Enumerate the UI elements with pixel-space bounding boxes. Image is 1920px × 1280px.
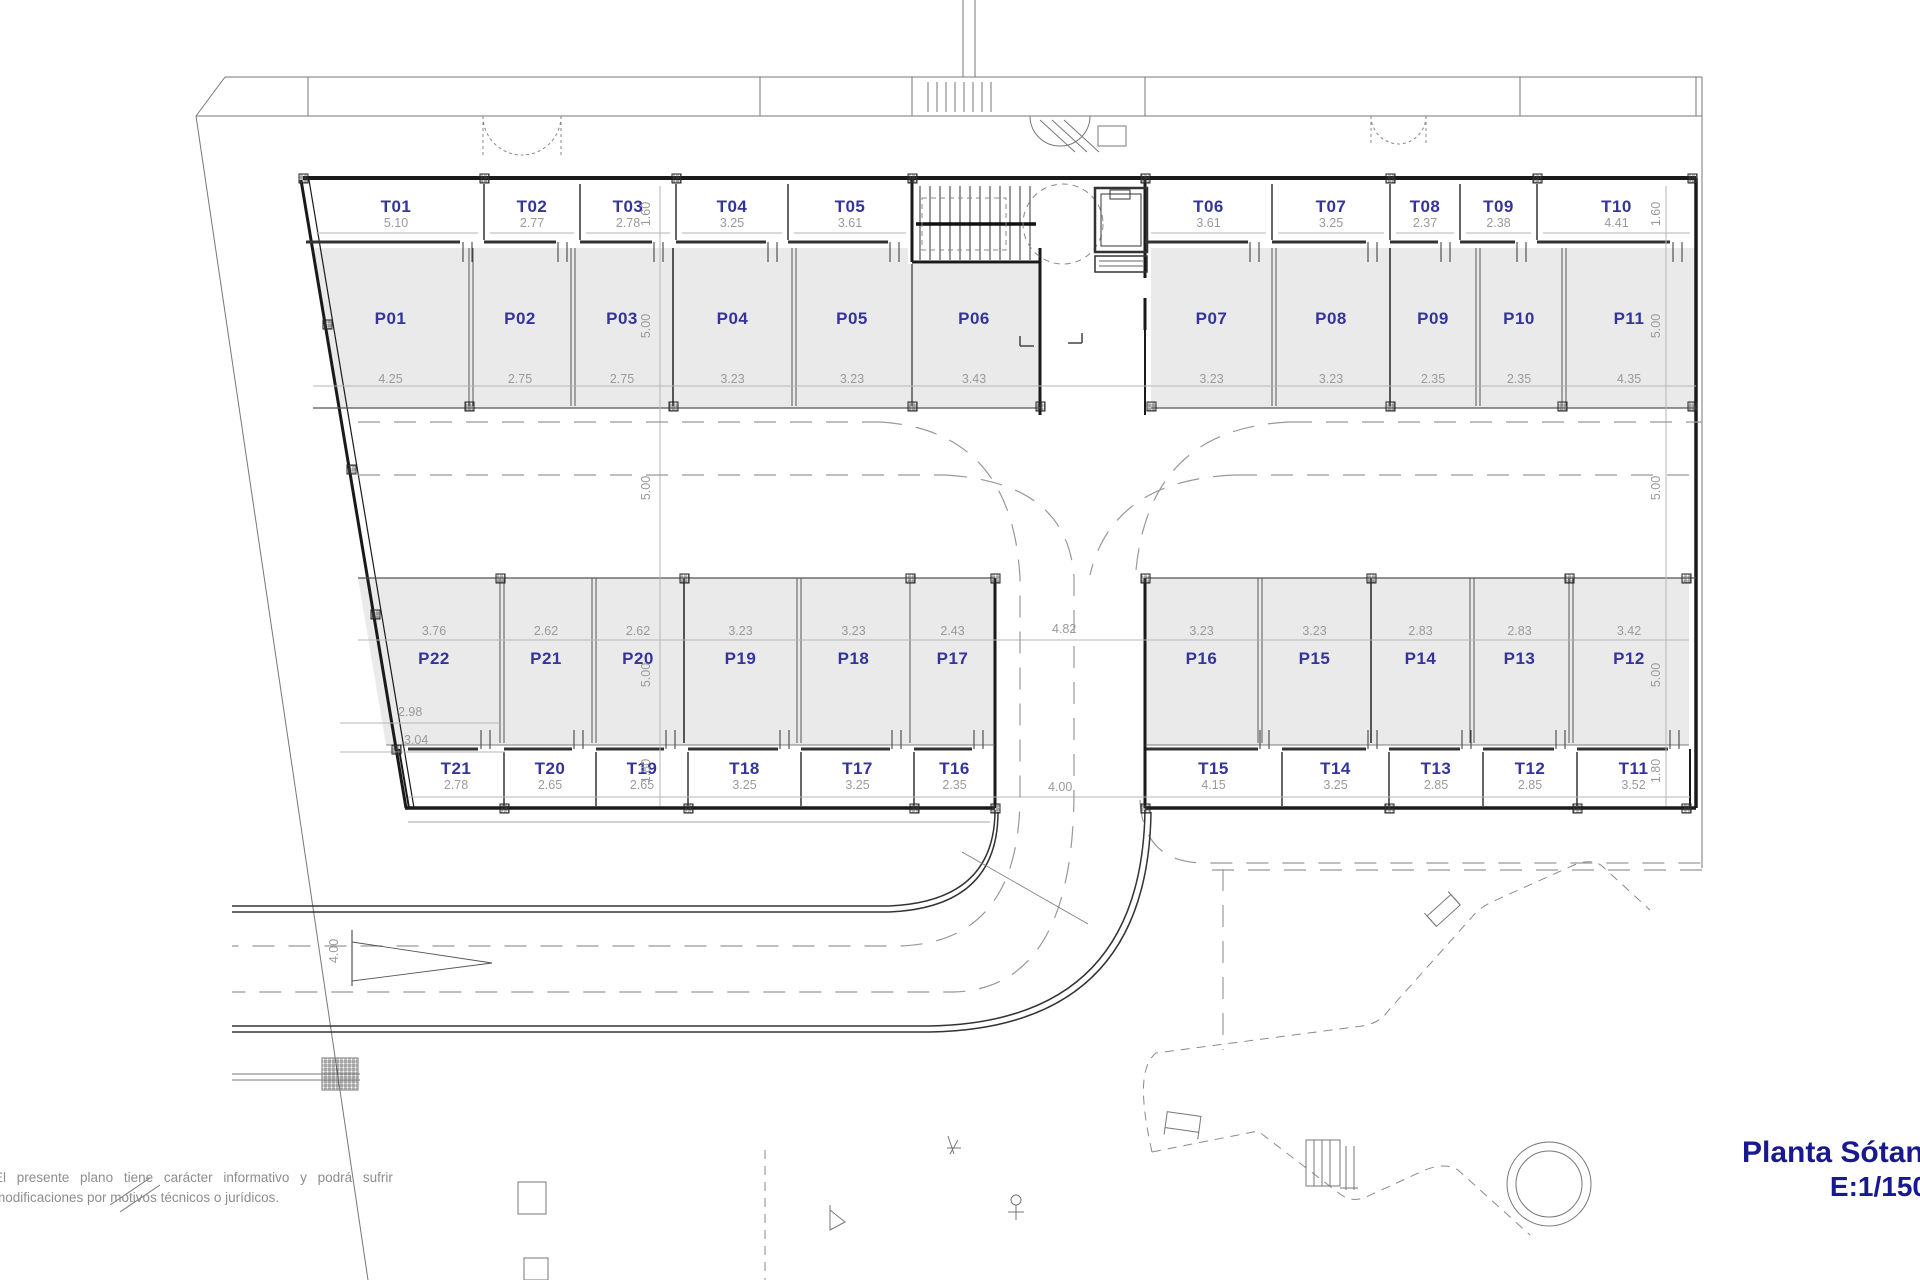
top-entry-porch: [928, 82, 1126, 152]
plant-icon: [1008, 1195, 1024, 1220]
title-block: Planta Sótano E:1/150: [1742, 1136, 1920, 1204]
dim-depth-aisle-right: 5.00: [1649, 476, 1663, 500]
ramp-road: [232, 810, 1151, 1032]
dim-t21-outer: 3.04: [404, 733, 428, 747]
dim-depth-parking-bottom-left: 5.00: [639, 663, 653, 687]
dim-depth-storage-bottom-left: 1.80: [639, 759, 653, 783]
dim-depth-parking-bottom-right: 5.00: [1649, 663, 1663, 687]
plan-scale: E:1/150: [1742, 1170, 1920, 1204]
bench-icon: [1424, 892, 1460, 927]
parking-fill-areas: [313, 248, 1696, 745]
grill-icon: [1306, 1140, 1358, 1190]
dim-depth-aisle-left: 5.00: [639, 476, 653, 500]
dim-ramp-gap: 4.00: [1048, 780, 1072, 794]
dim-depth-storage-top-left: 1.60: [639, 202, 653, 226]
entry-door-arcs: [483, 116, 1426, 155]
dim-depth-storage-top-right: 1.60: [1649, 202, 1663, 226]
flag-marker: [830, 1205, 845, 1230]
dim-bottom-gap: 4.82: [1052, 622, 1076, 636]
bench-icon: [1164, 1112, 1201, 1140]
terrace-dashed-outline: [765, 862, 1650, 1280]
dim-depth-storage-bottom-right: 1.80: [1649, 759, 1663, 783]
person-icon: [947, 1136, 961, 1154]
dim-ramp-width: 4.00: [327, 939, 341, 963]
ramp-slope-arrow: [352, 930, 492, 986]
disclaimer-note: El presente plano tiene carácter informa…: [0, 1168, 486, 1208]
floorplan-drawing: [0, 0, 1920, 1280]
disclaimer-line1: El presente plano tiene carácter informa…: [0, 1168, 486, 1188]
disclaimer-line2: modificaciones por motivos técnicos o ju…: [0, 1188, 486, 1208]
dim-depth-parking-top-left: 5.00: [639, 314, 653, 338]
elevator: [1095, 188, 1147, 272]
dim-p22-inner: 2.98: [398, 705, 422, 719]
floorplan-page: T01 5.10 T02 2.77 T03 2.78 T04 3.25 T05 …: [0, 0, 1920, 1280]
plan-title: Planta Sótano: [1742, 1136, 1920, 1169]
spa-circle: [1507, 1142, 1591, 1226]
dim-depth-parking-top-right: 5.00: [1649, 314, 1663, 338]
